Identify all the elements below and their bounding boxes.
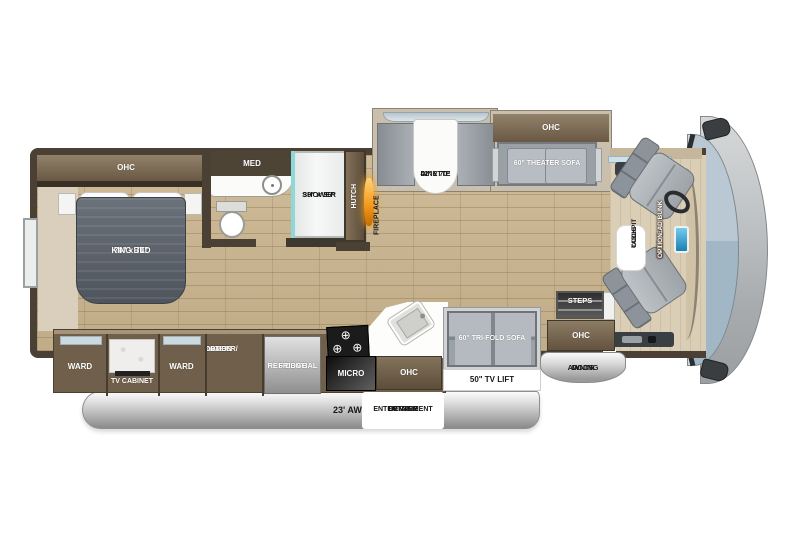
toilet: [219, 211, 245, 238]
nightstand-left: [58, 193, 76, 215]
king-bed-label: KING BED: [111, 246, 150, 256]
microwave: MICRO: [326, 356, 376, 391]
cockpit-table-label-2: TABLE: [631, 227, 639, 248]
hutch-label: HUTCH: [351, 184, 359, 209]
shower-label: SHOWER: [302, 190, 336, 199]
bathroom-sink: [262, 175, 282, 195]
king-bed: 70" x 74" KING BED: [76, 197, 186, 304]
cockpit-table: COCKPIT TABLE: [617, 226, 645, 270]
ward-right-label: WARD: [158, 362, 205, 372]
bedroom-overhead-cabinet: OHC: [37, 155, 215, 187]
micro-label: MICRO: [338, 369, 365, 379]
kitchen-overhead-cabinet: OHC: [376, 356, 442, 390]
shower-glass: [291, 151, 295, 238]
bathroom-wall: [202, 148, 211, 248]
ward-top-left: [60, 336, 102, 345]
tv-cabinet-label: TV CABINET: [106, 378, 158, 386]
wd-label-4: OPTION: [205, 346, 232, 354]
medicine-cabinet: MED: [211, 151, 293, 176]
entry-steps: STEPS: [556, 291, 604, 319]
burner-icon: ⊕: [352, 341, 363, 354]
burner-icon: ⊕: [332, 342, 343, 355]
living-ohc-label: OHC: [542, 123, 560, 133]
residential-fridge: RESIDENTIAL FRIDGE: [264, 336, 321, 394]
dinette-bench-right: [457, 123, 495, 186]
entry-overhead-cabinet: OHC: [547, 320, 615, 351]
oec-label-3: CENTER: [389, 406, 418, 414]
rear-window: [23, 218, 38, 288]
ward-left-label: WARD: [54, 362, 106, 372]
dinette-label: DINETTE: [421, 171, 451, 179]
tri-fold-sofa: 60" TRI-FOLD SOFA: [447, 311, 537, 367]
rv-floor-plan: OHC 70" x 74" KING BED MED 30" x 36" SHO…: [0, 0, 800, 545]
cabinet-divider: [205, 334, 207, 396]
fridge-label-2: FRIDGE: [278, 361, 306, 370]
tv-cabinet-top: [109, 339, 155, 373]
bathroom-wall-bottom: [202, 239, 256, 247]
dash-console-bottom: [612, 332, 674, 347]
door-awning: DOOR AWNING: [540, 352, 626, 383]
ward-left: WARD: [54, 362, 106, 372]
med-label: MED: [243, 159, 261, 169]
outside-entertainment-center: OUTSIDE ENTERTAINMENT CENTER: [362, 392, 444, 429]
tv-lift: 50" TV LIFT: [443, 369, 541, 391]
burner-icon: ⊕: [340, 329, 351, 342]
theater-sofa-label: 60" THEATER SOFA: [514, 160, 581, 168]
hutch-cabinet: HUTCH: [344, 150, 366, 242]
steps-label: STEPS: [568, 296, 593, 305]
living-overhead-cabinet: OHC: [493, 114, 609, 142]
bunk-label-3: OPTION: [657, 233, 665, 258]
fireplace: FIREPLACE: [369, 176, 387, 254]
tri-fold-sofa-label: 60" TRI-FOLD SOFA: [459, 335, 526, 343]
tv: [115, 371, 150, 376]
cabinet-divider: [106, 334, 108, 396]
shower: 30" x 36" SHOWER: [291, 151, 347, 238]
fireplace-label: FIREPLACE: [374, 195, 382, 235]
entry-ohc-label: OHC: [572, 331, 590, 341]
tv-cabinet: TV CABINET: [106, 378, 158, 386]
nightstand-right: [184, 193, 202, 215]
cooktop: ⊕ ⊕ ⊕: [326, 325, 370, 359]
ward-top-right: [163, 336, 201, 345]
cabinet-divider: [158, 334, 160, 396]
ward-right: WARD: [158, 362, 205, 372]
dinette-table: 42" x 70" DINETTE: [413, 119, 458, 194]
hutch-base: [336, 242, 370, 251]
patio-awning: 23' AWNING: [82, 391, 540, 429]
door-awning-label-2: AWNING: [568, 363, 599, 372]
kitchen-ohc-label: OHC: [400, 368, 418, 378]
theater-sofa-label-wrap: 60" THEATER SOFA: [497, 142, 597, 186]
tv-lift-label: 50" TV LIFT: [470, 375, 514, 385]
bedroom-ohc-label: OHC: [117, 163, 135, 173]
